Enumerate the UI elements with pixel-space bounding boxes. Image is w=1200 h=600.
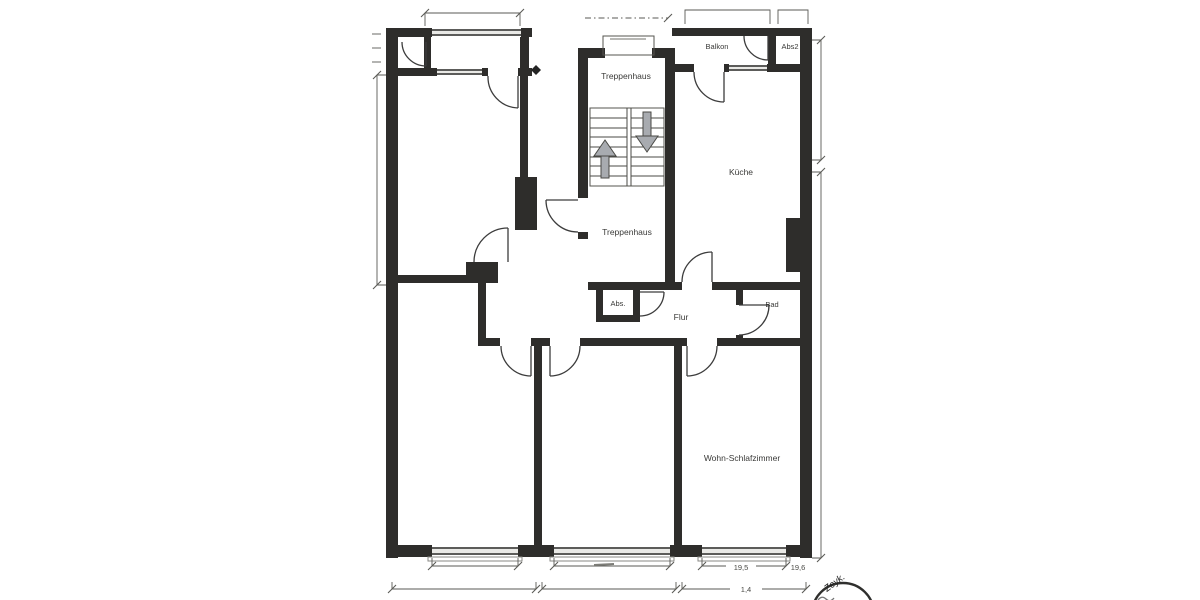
approval-stamp: Zeyk. xyxy=(812,572,874,600)
door-bad xyxy=(739,305,769,335)
wall-partition-bottom-left xyxy=(534,346,542,552)
chimney-block-right xyxy=(786,218,802,272)
wall-partition-bottom-right xyxy=(674,346,682,552)
wall-exterior-left xyxy=(386,30,398,558)
room-label-kueche: Küche xyxy=(729,167,753,177)
chimney-block-left xyxy=(515,177,537,230)
dim-label-bottom-right: 1,4 xyxy=(741,585,751,594)
chimney-block-hall xyxy=(466,262,498,283)
door-stair-landing xyxy=(546,200,578,232)
door-abs-closet xyxy=(640,292,664,316)
room-label-wohn-schlafzimmer: Wohn-Schlafzimmer xyxy=(704,453,781,463)
room-labels: Treppenhaus Treppenhaus Balkon Abs2 Küch… xyxy=(601,42,798,463)
dim-label-window-right: 19,5 xyxy=(734,563,749,572)
room-label-balkon: Balkon xyxy=(706,42,729,51)
room-label-abs2: Abs2 xyxy=(781,42,798,51)
door-wohn-schlafzimmer xyxy=(687,346,717,376)
room-label-treppenhaus-upper: Treppenhaus xyxy=(601,71,651,81)
wall-exterior-right xyxy=(800,28,812,558)
stairs xyxy=(590,108,664,186)
room-label-treppenhaus-lower: Treppenhaus xyxy=(602,227,652,237)
wall-stairwell-right xyxy=(665,58,675,290)
dim-label-pier-right: 19,6 xyxy=(791,563,806,572)
door-loggia-to-room xyxy=(488,76,518,108)
door-hall-to-room-left xyxy=(474,228,508,262)
diamond-marker-icon xyxy=(531,65,541,75)
stair-direction-up-arrow-icon xyxy=(594,140,616,178)
door-abs2 xyxy=(744,36,768,60)
door-room-bottom-middle xyxy=(550,346,580,376)
door-room-bottom-left xyxy=(501,346,531,376)
door-loggia-closet xyxy=(402,42,426,66)
wall-stairwell-left xyxy=(578,58,588,198)
floor-plan-page: Treppenhaus Treppenhaus Balkon Abs2 Küch… xyxy=(0,0,1200,600)
door-kitchen xyxy=(682,252,712,282)
door-balcony-to-kitchen xyxy=(694,72,724,102)
floor-plan-svg: Treppenhaus Treppenhaus Balkon Abs2 Küch… xyxy=(0,0,1200,600)
entrance-porch xyxy=(603,36,654,55)
room-label-abs: Abs. xyxy=(610,299,625,308)
room-label-bad: Bad xyxy=(765,300,778,309)
room-label-flur: Flur xyxy=(674,312,689,322)
